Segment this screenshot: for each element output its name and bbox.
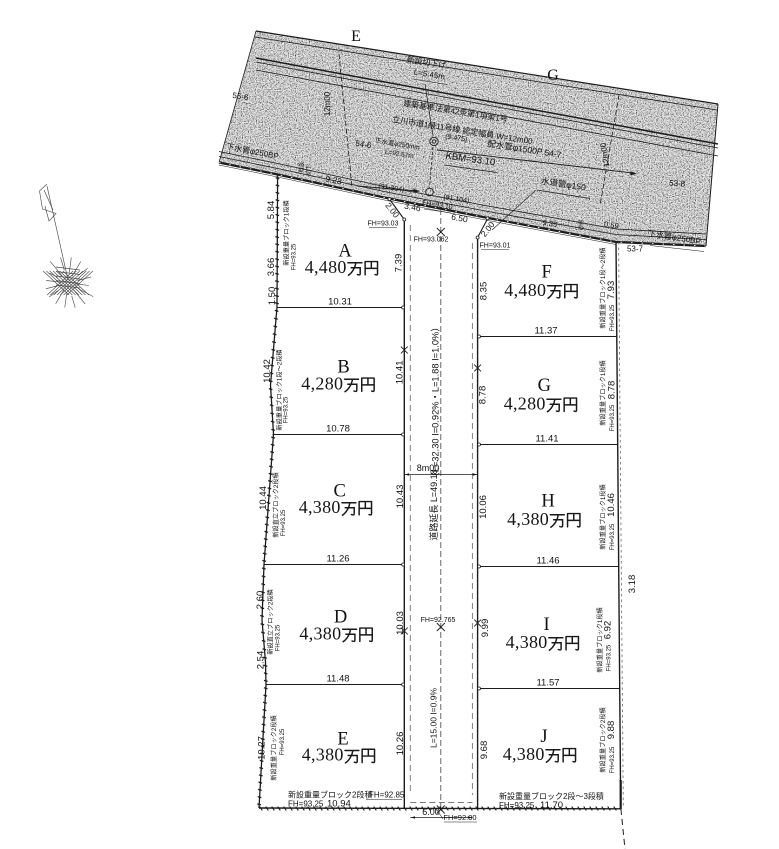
svg-text:9.88: 9.88: [606, 721, 617, 740]
svg-text:（L=32.30 I=0.92%・L=1.88 I=1.0%: （L=32.30 I=0.92%・L=1.88 I=1.0%）: [431, 322, 441, 481]
svg-text:4,380: 4,380: [507, 509, 549, 529]
svg-text:FH=93.25: FH=93.25: [292, 243, 298, 270]
svg-text:8.78: 8.78: [478, 386, 489, 405]
svg-text:1.50: 1.50: [267, 287, 278, 306]
svg-text:11.26: 11.26: [326, 554, 349, 565]
svg-text:10.06: 10.06: [478, 495, 489, 519]
svg-text:FH=93.25: FH=93.25: [276, 624, 282, 651]
svg-text:新設重量ブロック2段積: 新設重量ブロック2段積: [270, 715, 278, 780]
svg-text:9.99: 9.99: [480, 619, 491, 638]
svg-text:4,380: 4,380: [299, 624, 341, 644]
svg-text:4,280: 4,280: [301, 374, 343, 394]
svg-text:3.66: 3.66: [266, 258, 277, 277]
svg-text:11.57: 11.57: [536, 678, 559, 689]
svg-text:4,380: 4,380: [506, 632, 548, 652]
svg-text:4,280: 4,280: [504, 394, 546, 414]
svg-text:4,480: 4,480: [504, 280, 546, 300]
svg-text:10.44: 10.44: [258, 486, 269, 510]
svg-text:新設重量ブロック1段積: 新設重量ブロック1段積: [283, 200, 291, 265]
svg-text:FH=93.03: FH=93.03: [368, 221, 399, 228]
svg-text:FH=93.25: FH=93.25: [499, 801, 535, 810]
svg-text:砂利: 砂利: [578, 220, 585, 230]
svg-text:FH=93.25: FH=93.25: [288, 800, 324, 809]
svg-text:11.70: 11.70: [540, 800, 563, 811]
svg-text:4,380: 4,380: [302, 745, 344, 765]
svg-text:4,480: 4,480: [305, 257, 347, 277]
svg-text:FH=93.25: FH=93.25: [607, 644, 613, 671]
svg-text:10.26: 10.26: [395, 732, 406, 756]
svg-text:新設直立ブロック2段積: 新設直立ブロック2段積: [267, 589, 275, 654]
svg-text:3.18: 3.18: [627, 575, 638, 594]
svg-text:9.68: 9.68: [479, 741, 490, 760]
svg-text:7.93: 7.93: [606, 281, 617, 300]
svg-text:G: G: [547, 67, 559, 84]
svg-text:FH=93.062: FH=93.062: [414, 237, 449, 244]
svg-text:L=15.00 I=0.9%: L=15.00 I=0.9%: [429, 688, 439, 748]
svg-text:4,380: 4,380: [299, 497, 341, 517]
svg-text:5.84: 5.84: [266, 201, 277, 220]
svg-text:53-7: 53-7: [627, 245, 644, 254]
svg-text:12m00: 12m00: [323, 91, 332, 116]
svg-text:切下: 切下: [305, 165, 312, 175]
svg-text:53-8: 53-8: [669, 178, 686, 188]
svg-text:既設: 既設: [298, 162, 305, 172]
svg-text:11.37: 11.37: [534, 326, 557, 337]
svg-text:FH=93.25: FH=93.25: [280, 728, 286, 755]
svg-text:10.43: 10.43: [395, 485, 406, 509]
svg-text:FH=93.25: FH=93.25: [281, 509, 287, 536]
svg-text:8.35: 8.35: [479, 282, 490, 301]
svg-text:6.92: 6.92: [603, 621, 614, 640]
svg-text:FH=93.25: FH=93.25: [610, 746, 616, 773]
svg-text:E: E: [351, 28, 361, 45]
svg-text:FH=92.90: FH=92.90: [443, 813, 476, 822]
svg-text:10.78: 10.78: [326, 424, 350, 435]
svg-text:FH=93.25: FH=93.25: [610, 523, 616, 550]
svg-text:FH=93.25: FH=93.25: [284, 396, 290, 423]
svg-text:2.54: 2.54: [256, 651, 267, 670]
svg-text:2.60: 2.60: [255, 591, 266, 610]
svg-text:11.48: 11.48: [326, 674, 349, 685]
svg-text:道路延長 L=49.18: 道路延長 L=49.18: [428, 469, 439, 540]
svg-text:10.31: 10.31: [328, 297, 352, 308]
svg-text:FH=92.765: FH=92.765: [421, 617, 456, 624]
svg-text:FH=93.25: FH=93.25: [610, 304, 616, 331]
svg-text:10.94: 10.94: [327, 799, 351, 810]
svg-text:11.41: 11.41: [535, 434, 558, 445]
svg-text:10.41: 10.41: [394, 361, 405, 385]
svg-text:10.42: 10.42: [262, 359, 273, 383]
svg-text:新設直立ブロック2段積: 新設直立ブロック2段積: [272, 472, 280, 537]
svg-text:10.27: 10.27: [257, 736, 268, 760]
svg-text:11.46: 11.46: [536, 556, 559, 567]
svg-text:FH=93.25: FH=93.25: [610, 404, 616, 431]
svg-text:FH=92.85: FH=92.85: [369, 791, 405, 800]
svg-text:新設重量ブロック1段〜2段積: 新設重量ブロック1段〜2段積: [276, 349, 284, 430]
svg-text:7.39: 7.39: [394, 254, 405, 273]
svg-text:FH=93.01: FH=93.01: [480, 243, 511, 250]
svg-text:4,380: 4,380: [503, 744, 545, 764]
svg-text:10.46: 10.46: [606, 493, 617, 517]
svg-text:8.78: 8.78: [607, 381, 618, 400]
svg-text:10.03: 10.03: [395, 611, 406, 635]
